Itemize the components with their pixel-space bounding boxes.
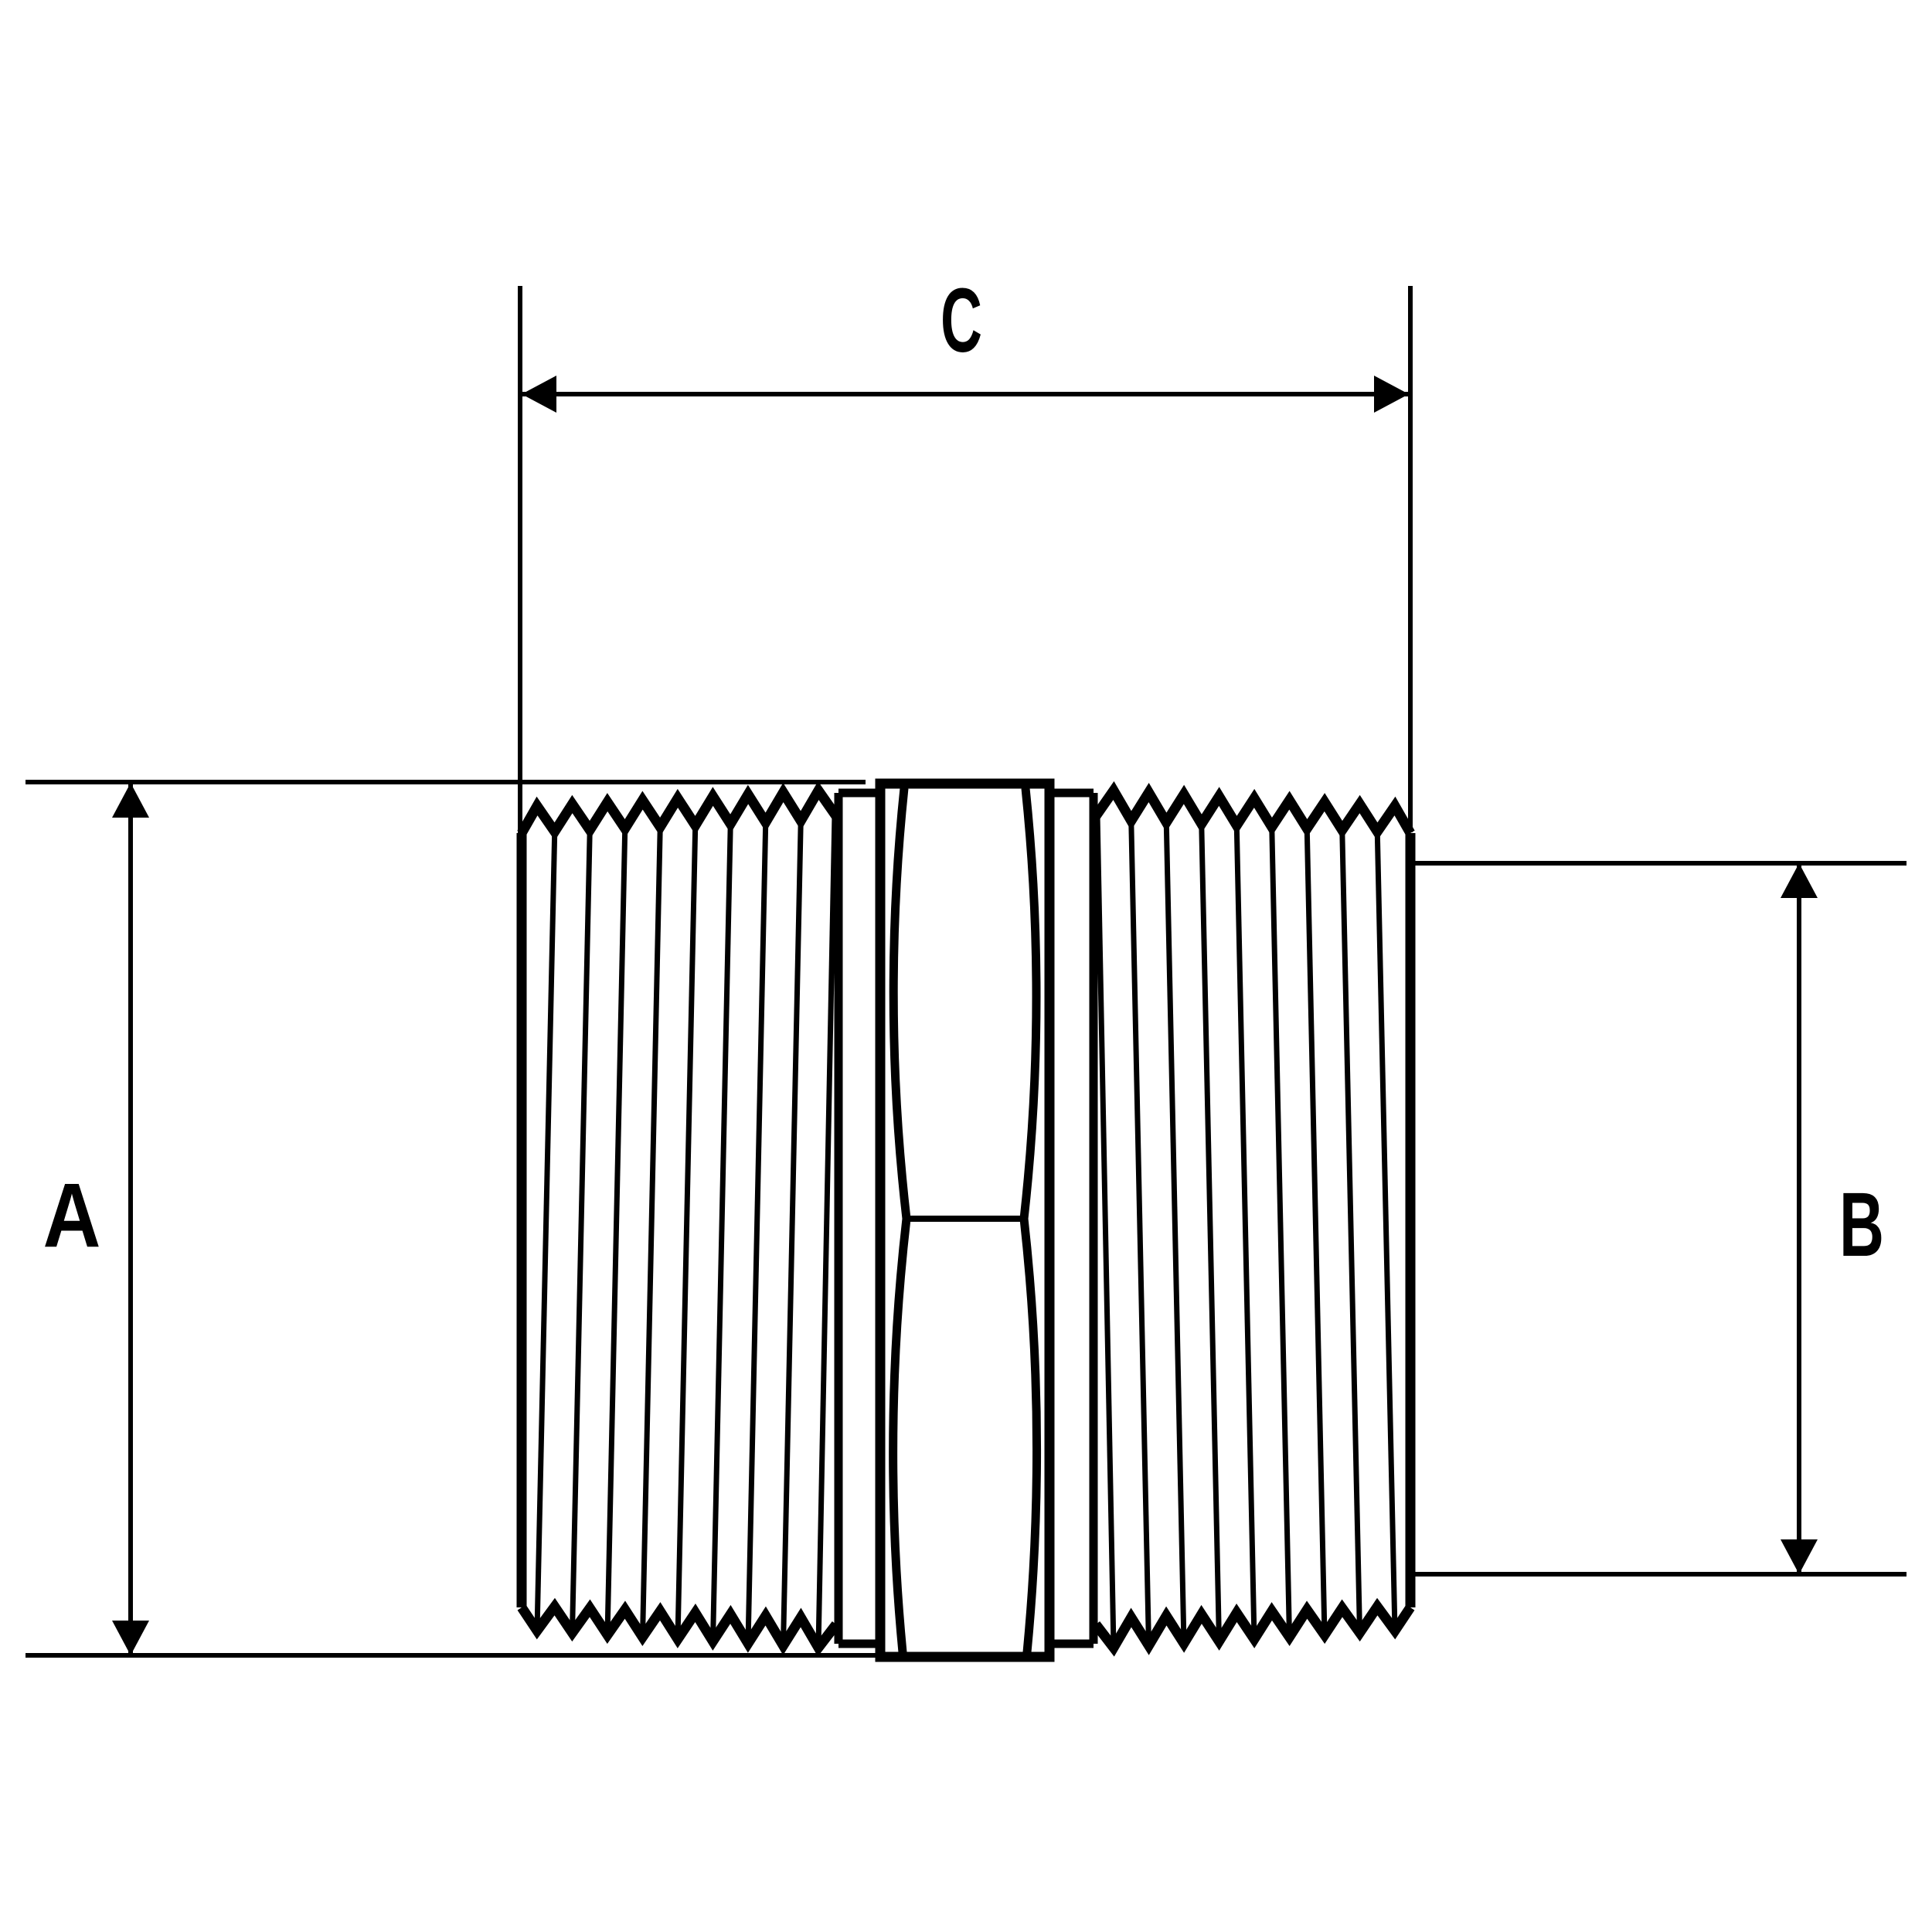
dim-c-arrow-left	[522, 376, 556, 413]
right-thread-top-crest	[1096, 791, 1410, 833]
thread-flank-line	[1131, 821, 1149, 1645]
dimension-b: B	[1410, 863, 1906, 1574]
thread-flank-line	[1377, 832, 1395, 1631]
dim-b-arrow-up	[1781, 863, 1818, 898]
hex-body	[880, 784, 1049, 1657]
dim-a-arrow-up	[112, 783, 149, 818]
dim-c-label: C	[940, 270, 982, 372]
dim-a-label: A	[43, 1165, 101, 1267]
dim-b-label: B	[1839, 1174, 1884, 1276]
thread-flank-line	[1236, 825, 1254, 1639]
dim-a-arrow-down	[112, 1621, 149, 1655]
dim-b-arrow-down	[1781, 1539, 1818, 1574]
thread-flank-line	[1272, 827, 1290, 1637]
pipe-nipple-technical-drawing: A B C	[0, 0, 1932, 1932]
thread-flank-line	[1097, 815, 1114, 1647]
left-thread-section	[522, 791, 836, 1648]
right-thread-section	[1096, 791, 1410, 1648]
thread-flank-line	[573, 830, 590, 1633]
hex-right-face-arc	[1024, 788, 1037, 1652]
left-thread-flank-lines	[537, 815, 835, 1647]
dimension-c: C	[520, 270, 1410, 833]
thread-flank-line	[607, 828, 625, 1635]
thread-flank-line	[1307, 828, 1325, 1635]
drawing-canvas: A B C	[0, 0, 1932, 1932]
thread-flank-line	[1202, 824, 1219, 1641]
thread-flank-line	[784, 821, 801, 1645]
right-thread-flank-lines	[1097, 815, 1395, 1647]
thread-flank-line	[643, 827, 661, 1637]
thread-flank-line	[1342, 830, 1360, 1633]
right-collar	[1052, 793, 1094, 1644]
left-thread-top-crest	[522, 791, 836, 833]
thread-flank-line	[1166, 822, 1184, 1644]
thread-flank-line	[678, 825, 696, 1639]
thread-flank-line	[713, 824, 731, 1641]
hex-left-face-arc	[893, 788, 906, 1652]
dim-c-arrow-right	[1374, 376, 1409, 413]
thread-flank-line	[748, 822, 766, 1644]
left-collar	[838, 793, 880, 1644]
thread-flank-line	[818, 815, 835, 1647]
thread-flank-line	[537, 832, 555, 1631]
